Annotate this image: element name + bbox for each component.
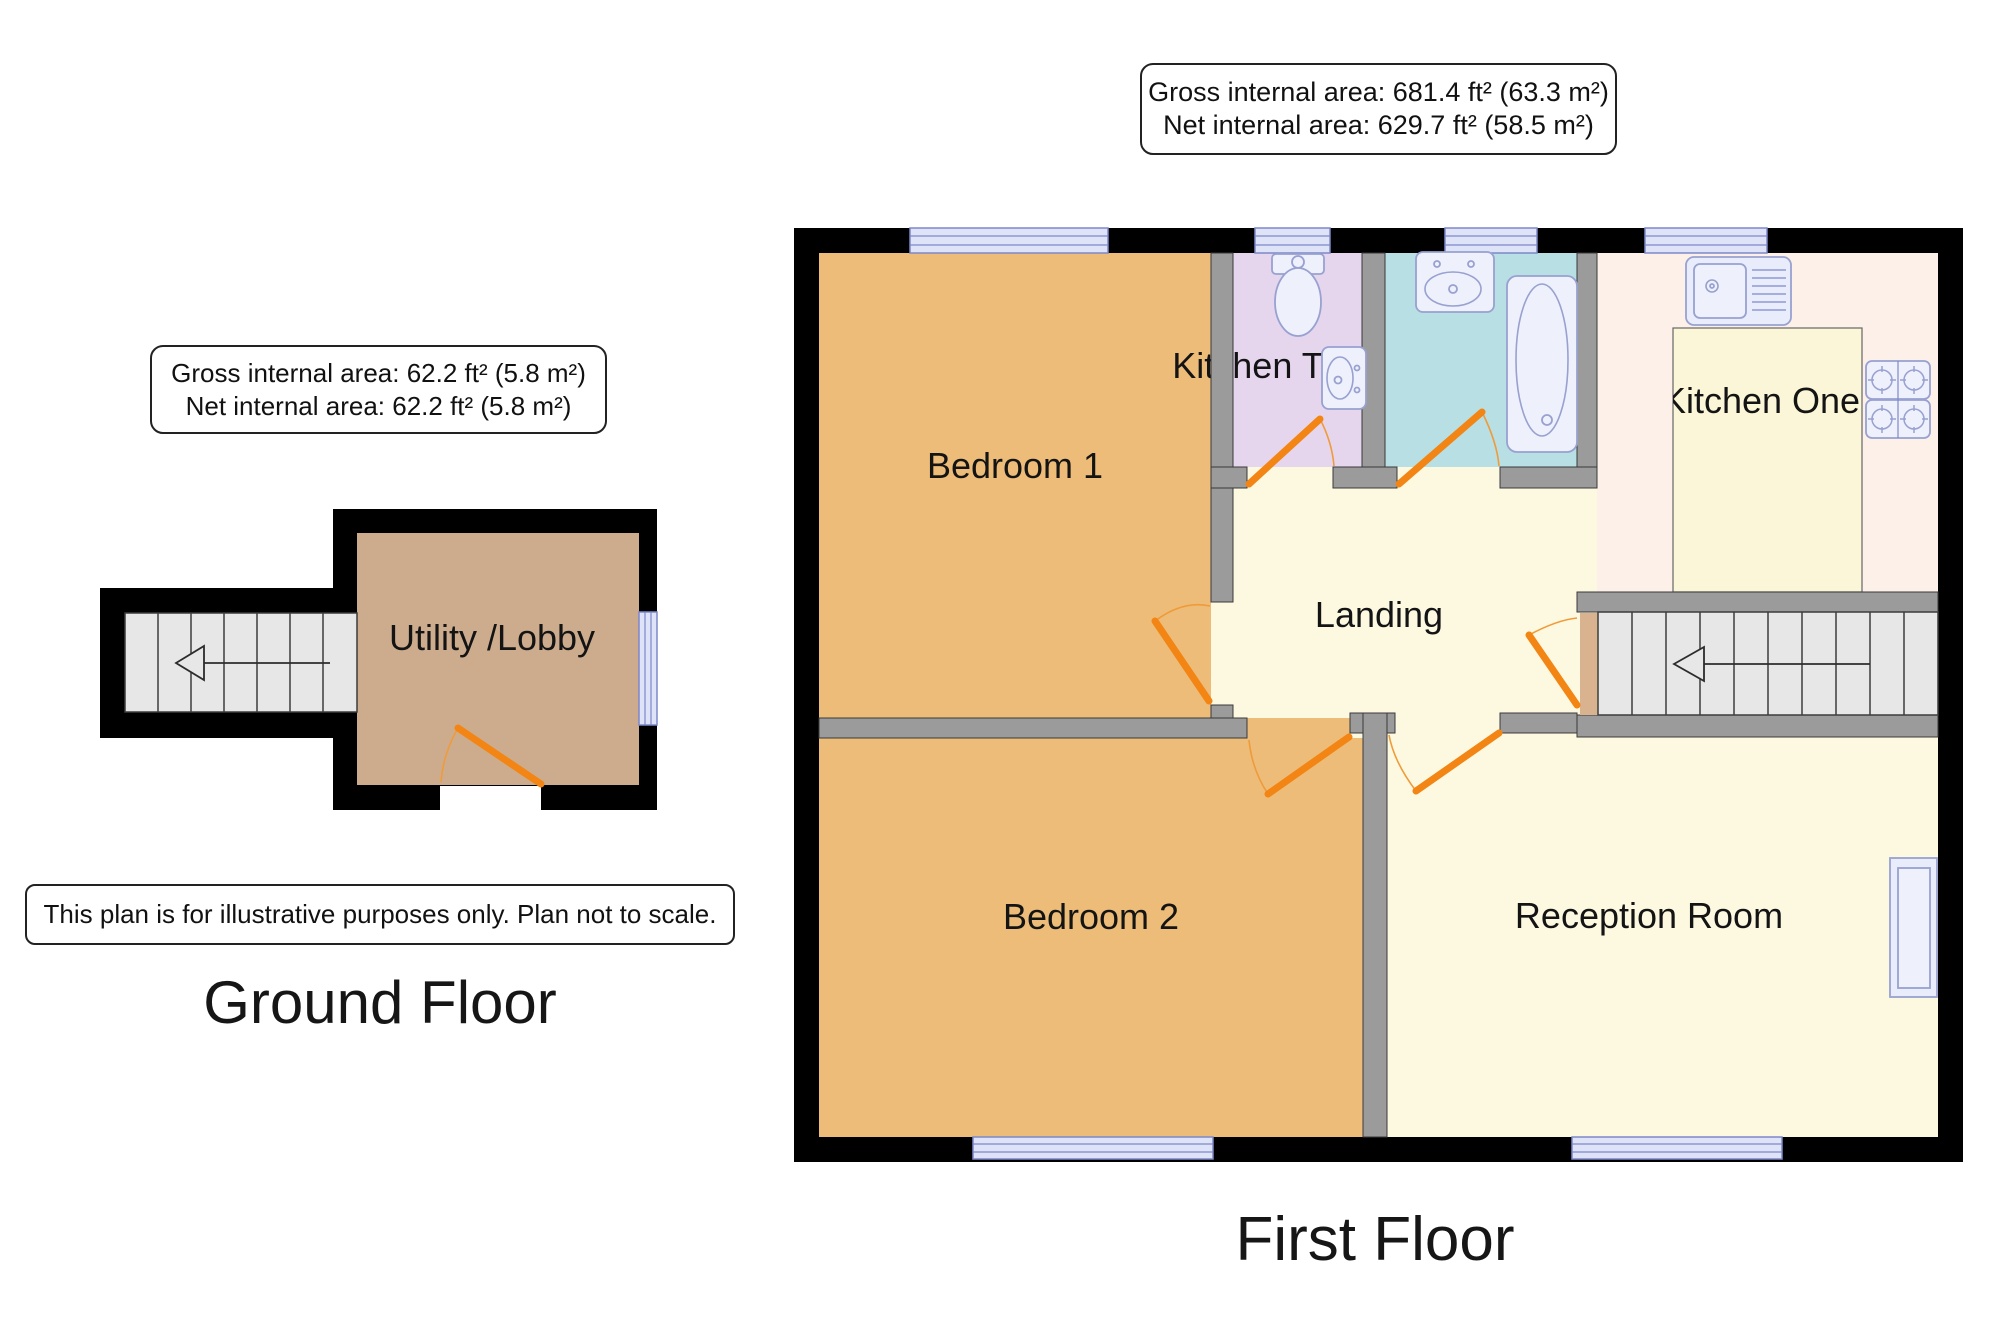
reception-bay-window — [1890, 858, 1937, 997]
stair-threshold — [1580, 613, 1598, 715]
first-floor-stairs — [1577, 592, 1938, 737]
bathroom-window — [1445, 228, 1537, 253]
disclaimer-text: This plan is for illustrative purposes o… — [44, 899, 717, 930]
kitchen-window — [1645, 228, 1767, 253]
bath-icon — [1507, 276, 1577, 452]
ground-floor-area-box: Gross internal area: 62.2 ft² (5.8 m²) N… — [150, 345, 607, 434]
bedroom2-floor — [819, 738, 1363, 1137]
disclaimer-box: This plan is for illustrative purposes o… — [25, 884, 735, 945]
bedroom2-label: Bedroom 2 — [1003, 896, 1179, 937]
kitchen-island — [1673, 328, 1862, 592]
basin-icon — [1416, 252, 1494, 312]
utility-window — [639, 612, 657, 725]
reception-bottom-window — [1572, 1137, 1782, 1159]
wc-window — [1255, 228, 1330, 253]
utility-floor — [357, 533, 639, 785]
first-floor-net-area: Net internal area: 629.7 ft² (58.5 m²) — [1163, 109, 1594, 142]
ground-floor-plan: Utility /Lobby — [100, 509, 657, 810]
first-floor-gross-area: Gross internal area: 681.4 ft² (63.3 m²) — [1148, 76, 1609, 109]
first-floor-plan: Kitchen Two Kitchen One — [794, 228, 1963, 1162]
ground-floor-gross-area: Gross internal area: 62.2 ft² (5.8 m²) — [171, 357, 586, 390]
ground-floor-stairs — [125, 613, 357, 712]
toilet-icon — [1272, 254, 1324, 336]
floorplan-drawing: Kitchen Two Kitchen One — [0, 0, 2000, 1333]
ground-floor-net-area: Net internal area: 62.2 ft² (5.8 m²) — [186, 390, 572, 423]
floorplan-page: Kitchen Two Kitchen One — [0, 0, 2000, 1333]
bedroom2-door-threshold — [1247, 718, 1350, 738]
first-floor-title: First Floor — [1125, 1204, 1625, 1275]
landing-label: Landing — [1315, 594, 1443, 635]
bedroom2-window — [973, 1137, 1213, 1159]
hob-icon — [1866, 361, 1930, 438]
reception-room-label: Reception Room — [1515, 895, 1783, 936]
kitchen-sink-icon — [1686, 257, 1791, 325]
ground-floor-title: Ground Floor — [140, 968, 620, 1037]
first-floor-area-box: Gross internal area: 681.4 ft² (63.3 m²)… — [1140, 63, 1617, 155]
kitchen-one-label: Kitchen One — [1662, 380, 1860, 421]
bedroom1-label: Bedroom 1 — [927, 445, 1103, 486]
bedroom1-window — [910, 228, 1108, 253]
corner-basin-icon — [1322, 347, 1366, 409]
utility-lobby-label: Utility /Lobby — [389, 617, 595, 658]
